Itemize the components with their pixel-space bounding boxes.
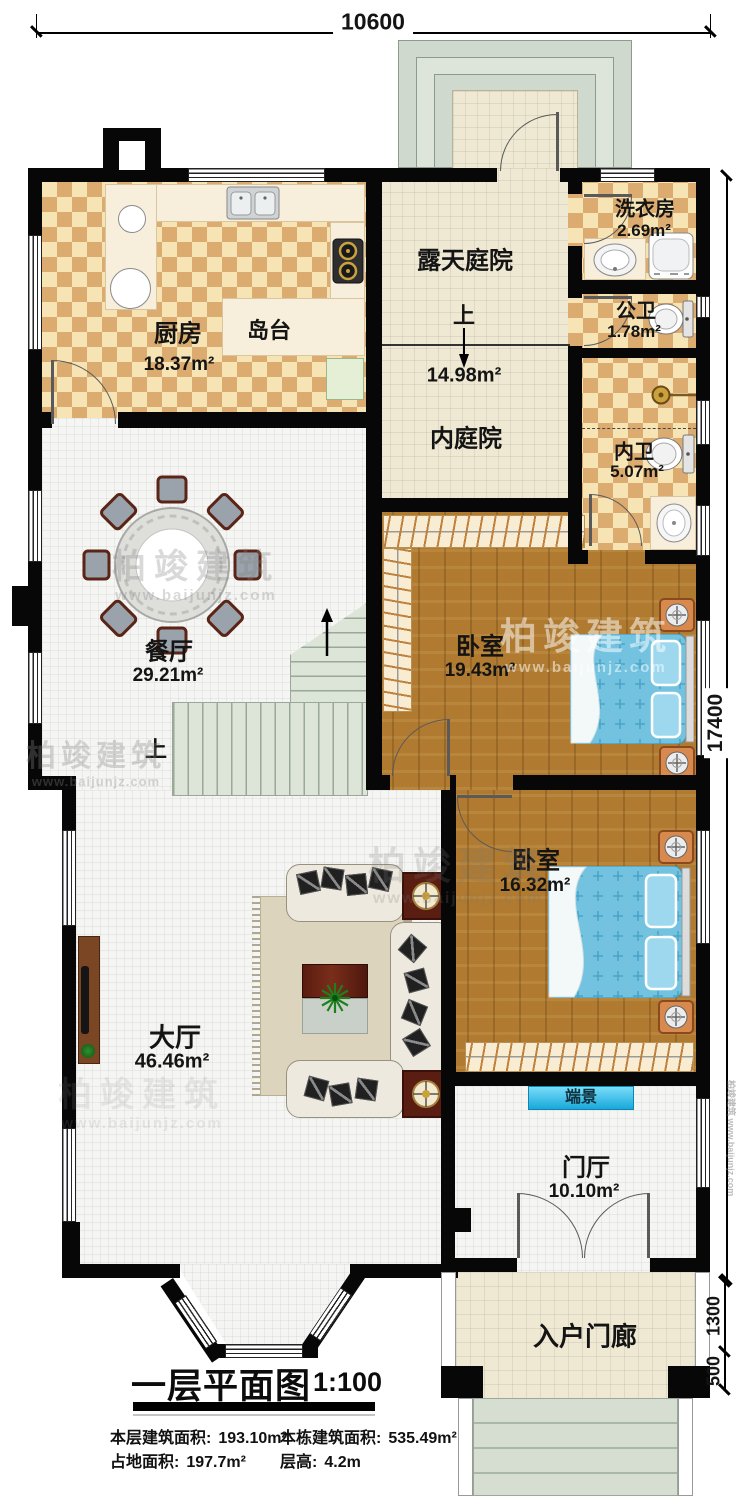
title-underline [133, 1402, 375, 1411]
dining-label: 餐厅 [145, 632, 193, 667]
nightstand-icon [658, 830, 694, 864]
pillow [368, 867, 393, 892]
end-view-feature: 端景 [528, 1086, 634, 1110]
entry-steps [473, 1398, 678, 1496]
kitchen-area: 18.37m² [144, 354, 215, 376]
foyer-label: 门厅 [562, 1148, 610, 1183]
end-view-label: 端景 [565, 1089, 597, 1106]
floor-plan: 端景 [0, 0, 750, 1500]
courtyard-area: 14.98m² [427, 365, 502, 388]
dim-right-height: 17400 [704, 688, 728, 758]
bedroom1-closet-top [383, 515, 585, 548]
bedroom1-label: 卧室 [456, 627, 504, 662]
window [28, 490, 42, 562]
kitchen-island-counter [222, 298, 365, 356]
kitchen-basin-small [118, 205, 146, 233]
kitchen-basin-large [110, 268, 151, 309]
window [696, 296, 710, 318]
bedroom2-label: 卧室 [512, 841, 560, 876]
stat-value: 193.10m² [218, 1430, 287, 1447]
step-rail-left [458, 1398, 473, 1496]
nightstand-icon [658, 1000, 694, 1034]
pillow [320, 866, 344, 890]
window [600, 168, 655, 182]
dim-porch-depth: 1300 [704, 1296, 725, 1336]
pilaster [12, 586, 28, 626]
courtyard-divider [378, 344, 570, 346]
kitchen-label: 厨房 [154, 314, 202, 349]
stat-value: 197.7m² [186, 1454, 246, 1471]
stat-storey-height: 层高:4.2m [280, 1448, 361, 1472]
stat-footprint: 占地面积:197.7m² [110, 1448, 246, 1472]
inner-wc-sink-icon [655, 502, 693, 544]
pillow [328, 1082, 352, 1106]
laundry-sink-icon [592, 242, 638, 278]
step-rail-right [678, 1398, 693, 1496]
tv-plant-icon [81, 1044, 95, 1058]
open-courtyard-label: 露天庭院 [417, 241, 513, 276]
rug-fringe-left [252, 896, 260, 1096]
window [696, 505, 710, 556]
island-label: 岛台 [247, 313, 291, 345]
window [28, 652, 42, 724]
dim-step-depth: 500 [704, 1356, 725, 1386]
bedroom1-closet-left [383, 548, 412, 712]
window [62, 830, 76, 926]
stair-up-label: 上 [145, 732, 167, 764]
title-underline-thin [133, 1414, 375, 1416]
pillow [345, 873, 368, 896]
window [696, 400, 710, 445]
plan-scale: 1:100 [313, 1367, 382, 1398]
shower-icon [650, 380, 696, 410]
stat-label: 占地面积: [110, 1454, 179, 1471]
laundry-label: 洗衣房 [615, 193, 675, 222]
pillow [296, 870, 321, 895]
hall-label: 大厅 [149, 1018, 201, 1055]
chimney-flue [119, 141, 145, 170]
kitchen-appliance [326, 358, 364, 400]
stat-floor-area: 本层建筑面积:193.10m² [110, 1424, 287, 1448]
stair-direction-arrow [318, 606, 336, 658]
inner-courtyard-label: 内庭院 [430, 419, 502, 454]
stat-label: 层高: [280, 1454, 317, 1471]
stat-label: 本层建筑面积: [110, 1430, 211, 1447]
inner-wc-area: 5.07m² [610, 462, 664, 482]
window [696, 1098, 710, 1188]
hall-area: 46.46m² [135, 1051, 210, 1074]
courtyard-floor [366, 168, 582, 512]
kitchen-sink-icon [226, 186, 280, 220]
bay-window [225, 1344, 303, 1358]
watermark-url: www.baijunjz.com [726, 1119, 736, 1197]
bedroom2-area: 16.32m² [500, 875, 571, 897]
bedroom1-area: 19.43m² [445, 660, 516, 682]
dining-table-icon [82, 475, 262, 655]
stove-icon [332, 238, 364, 284]
nightstand-icon [659, 598, 695, 632]
porch-label: 入户门廊 [533, 1317, 637, 1354]
pillow [355, 1078, 379, 1102]
window [696, 830, 710, 944]
window [62, 1128, 76, 1222]
public-wc-label: 公卫 [616, 295, 656, 324]
dim-top-width: 10600 [333, 9, 413, 36]
foyer-area: 10.10m² [549, 1181, 620, 1203]
watermark-brand: 柏竣建筑 [726, 1080, 736, 1116]
tv-icon [81, 966, 89, 1034]
stat-label: 本栋建筑面积: [280, 1430, 381, 1447]
dining-area: 29.21m² [133, 665, 204, 687]
inner-wc-label: 内卫 [614, 436, 654, 465]
plant-icon [318, 981, 352, 1015]
bedroom2-closet [465, 1042, 694, 1072]
laundry-area: 2.69m² [617, 221, 671, 241]
courtyard-down-arrow [455, 326, 473, 368]
bed-icon [570, 634, 694, 744]
inner-wc-partition [582, 428, 696, 429]
stat-value: 535.49m² [388, 1430, 457, 1447]
window [28, 235, 42, 350]
stat-value: 4.2m [324, 1454, 360, 1471]
public-wc-area: 1.78m² [607, 322, 661, 342]
stat-building-area: 本栋建筑面积:535.49m² [280, 1424, 457, 1448]
window [188, 168, 325, 182]
stair-lower-flight [172, 702, 368, 796]
